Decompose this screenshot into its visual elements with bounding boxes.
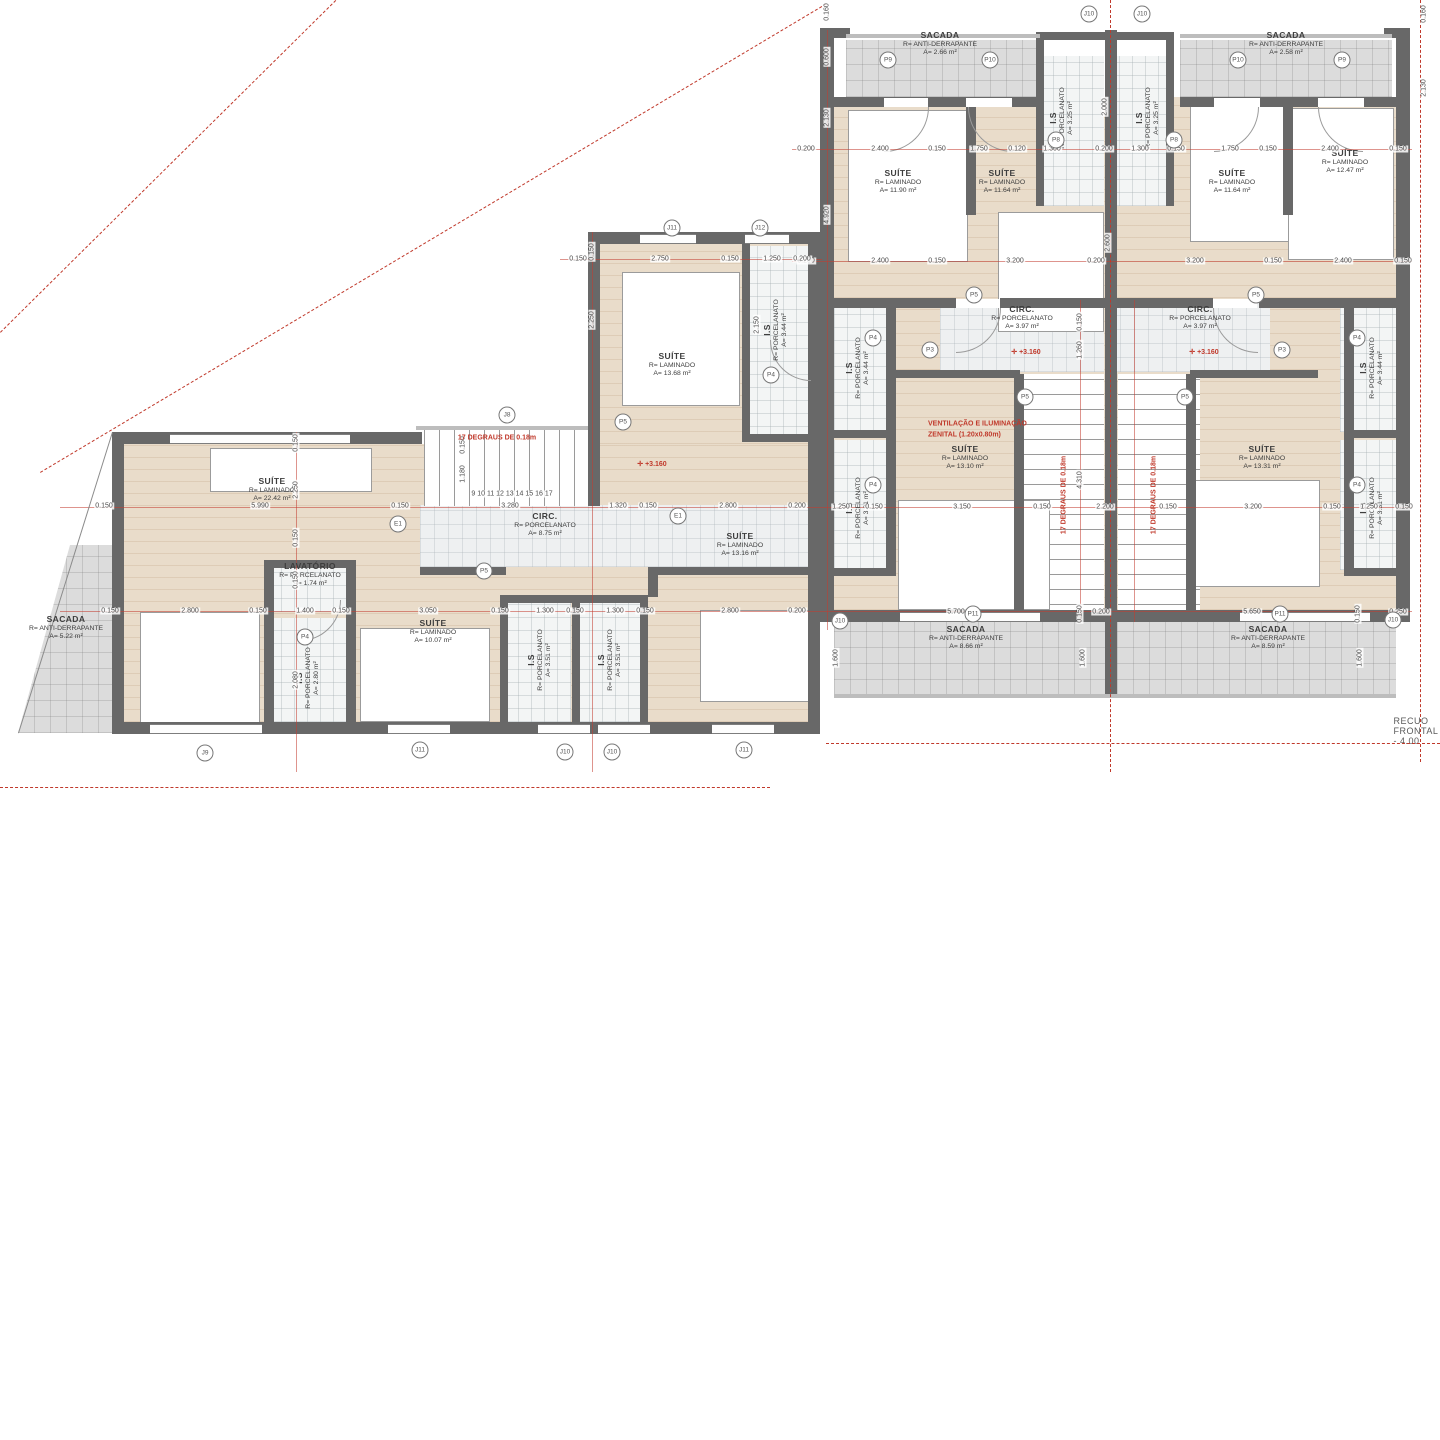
dimension-label: 0.150 — [490, 608, 510, 615]
dimension-label: 0.200 — [792, 256, 812, 263]
dimension-label: 3.050 — [418, 608, 438, 615]
dimension-label: 1.250 — [1359, 504, 1379, 511]
tag-badge-e1: E1 — [390, 516, 407, 533]
wall — [834, 97, 1044, 107]
dimension-label: 2.400 — [1333, 258, 1353, 265]
wall — [1396, 30, 1410, 622]
room-detail: R= PORCELANATO — [1169, 315, 1231, 323]
wall — [834, 568, 896, 576]
room-detail: A= 3.44 m² — [781, 299, 789, 361]
tag-badge-p8: P8 — [1048, 132, 1065, 149]
dimension-label: 1.600 — [1080, 648, 1087, 668]
tag-badge-p9: P9 — [880, 52, 897, 69]
tag-badge-j8: J8 — [499, 407, 516, 424]
dimension-label: 0.150 — [635, 608, 655, 615]
dimension-label: 0.150 — [565, 608, 585, 615]
room-title: SUÍTE — [410, 618, 456, 629]
room-detail: A= 2.66 m² — [903, 49, 977, 57]
window — [388, 724, 450, 734]
room-detail: A= 3.44 m² — [863, 337, 871, 399]
dimension-label: 0.150 — [1263, 258, 1283, 265]
room-title: SUÍTE — [979, 168, 1025, 179]
room-detail: R= LAMINADO — [410, 629, 456, 637]
room-detail: A= 3.97 m² — [1169, 323, 1231, 331]
dimension-label: 2.750 — [650, 256, 670, 263]
dimension-label: 1.600 — [833, 648, 840, 668]
dimension-label: 0.150 — [568, 256, 588, 263]
room-title: SUÍTE — [649, 351, 695, 362]
window — [745, 234, 789, 244]
room-label-suite-1331: SUÍTER= LAMINADOA= 13.31 m² — [1239, 444, 1285, 472]
room-title: SACADA — [29, 614, 103, 625]
room-detail: R= PORCELANATO — [279, 572, 341, 580]
window — [538, 724, 590, 734]
room-title: CIRC. — [1169, 304, 1231, 315]
dimension-label: 0.150 — [1258, 146, 1278, 153]
red-dash-line — [1110, 0, 1111, 772]
dimension-label: 3.200 — [1243, 504, 1263, 511]
tag-badge-p4: P4 — [297, 629, 314, 646]
dimension-label: 0.150 — [927, 146, 947, 153]
wall — [588, 232, 600, 444]
dimension-label: 0.120 — [1007, 146, 1027, 153]
wall — [346, 560, 356, 724]
room-title: SACADA — [1249, 30, 1323, 41]
room-detail: R= ANTI-DERRAPANTE — [1249, 41, 1323, 49]
wall — [892, 370, 1020, 378]
tag-badge-e1: E1 — [670, 508, 687, 525]
tag-badge-p4: P4 — [865, 477, 882, 494]
level-marker: ✛ +3.160 — [1011, 348, 1040, 356]
dimension-label: 3.200 — [1185, 258, 1205, 265]
room-title: I.S — [844, 337, 855, 399]
room-detail: A= 8.59 m² — [1231, 643, 1305, 651]
tag-badge-p10: P10 — [982, 52, 999, 69]
wall — [1036, 32, 1044, 206]
tag-badge-j10: J10 — [604, 744, 621, 761]
tag-badge-p5: P5 — [1248, 287, 1265, 304]
room-label-lavatorio: LAVATÓRIOR= PORCELANATOA= 1.74 m² — [279, 561, 341, 589]
wall — [264, 560, 274, 724]
wall — [112, 432, 124, 734]
room-detail: A= 11.64 m² — [1209, 187, 1255, 195]
dimension-label: 0.200 — [787, 608, 807, 615]
room-detail: R= LAMINADO — [1239, 455, 1285, 463]
wall — [1105, 622, 1117, 696]
tag-badge-j10: J10 — [557, 744, 574, 761]
room-title: I.S — [596, 629, 607, 691]
room-detail: A= 3.25 m² — [1067, 87, 1075, 149]
room-detail: R= LAMINADO — [717, 542, 763, 550]
room-label-suite-1316: SUÍTER= LAMINADOA= 13.16 m² — [717, 531, 763, 559]
wall — [1190, 370, 1318, 378]
wall — [1014, 374, 1024, 620]
red-note: 17 DEGRAUS DE 0.18m — [1061, 456, 1068, 534]
red-dash-line — [1420, 0, 1421, 762]
wall — [420, 567, 506, 575]
dimension-label: 0.200 — [1086, 258, 1106, 265]
tag-badge-j10: J10 — [832, 613, 849, 630]
dimension-label: 0.150 — [1394, 504, 1414, 511]
room-label-is-344a: I.SR= PORCELANATOA= 3.44 m² — [844, 337, 872, 399]
wall — [1105, 30, 1117, 622]
room-detail: A= 2.58 m² — [1249, 49, 1323, 57]
tag-badge-p5: P5 — [615, 414, 632, 431]
dimension-label: 0.150 — [293, 570, 300, 590]
dimension-label: 2.600 — [1105, 233, 1112, 253]
room-detail: A= 3.51 m² — [545, 629, 553, 691]
dimension-label: 0.150 — [1158, 504, 1178, 511]
dimension-label: 0.150 — [94, 503, 114, 510]
room-label-suite-1190: SUÍTER= LAMINADOA= 11.90 m² — [875, 168, 921, 196]
room-detail: R= PORCELANATO — [991, 315, 1053, 323]
dimension-label: 1.250 — [762, 256, 782, 263]
room-title: SACADA — [929, 624, 1003, 635]
dimension-label: 1.260 — [1077, 340, 1084, 360]
dimension-label: 5.700 — [946, 609, 966, 616]
tag-badge-p3: P3 — [1274, 342, 1291, 359]
red-note: VENTILAÇÃO E ILUMINAÇÃO — [928, 421, 1027, 428]
room-detail: R= PORCELANATO — [514, 522, 576, 530]
door-opening — [1214, 98, 1260, 107]
room-detail: A= 3.51 m² — [615, 629, 623, 691]
bed — [622, 272, 740, 406]
level-marker: ✛ +3.160 — [1189, 348, 1218, 356]
room-detail: R= ANTI-DERRAPANTE — [29, 625, 103, 633]
room-label-sacada-esq: SACADAR= ANTI-DERRAPANTEA= 5.22 m² — [29, 614, 103, 642]
room-detail: R= LAMINADO — [875, 179, 921, 187]
door-opening — [1318, 98, 1364, 107]
tag-badge-p5: P5 — [1017, 389, 1034, 406]
red-dash-line — [826, 743, 1440, 744]
room-title: SACADA — [903, 30, 977, 41]
tag-badge-p4: P4 — [1349, 330, 1366, 347]
level-marker: ✛ +3.160 — [637, 460, 666, 468]
room-title: I.S — [1134, 87, 1145, 149]
wall — [1344, 438, 1354, 570]
door-opening — [966, 98, 1012, 107]
room-label-circ-397a: CIRC.R= PORCELANATOA= 3.97 m² — [991, 304, 1053, 332]
dimension-label: 1.320 — [608, 503, 628, 510]
dimension-label: 0.150 — [638, 503, 658, 510]
dimension-label: 1.300 — [1130, 146, 1150, 153]
tag-badge-p11: P11 — [965, 606, 982, 623]
dimension-label: 0.150 — [1077, 312, 1084, 332]
window — [712, 724, 774, 734]
dimension-label: 0.200 — [1094, 146, 1114, 153]
room-title: SUÍTE — [1209, 168, 1255, 179]
tag-badge-p3: P3 — [922, 342, 939, 359]
wall — [1166, 32, 1174, 206]
tag-badge-j10: J10 — [1385, 612, 1402, 629]
dimension-label: 0.150 — [1388, 146, 1408, 153]
room-label-sacada-topo-a: SACADAR= ANTI-DERRAPANTEA= 2.66 m² — [903, 30, 977, 58]
room-label-is-351b: I.SR= PORCELANATOA= 3.51 m² — [596, 629, 624, 691]
room-detail: A= 3.97 m² — [991, 323, 1053, 331]
dimension-label: 0.600 — [824, 47, 831, 67]
wall — [1344, 430, 1406, 438]
room-title: SACADA — [1231, 624, 1305, 635]
balcony-rail — [834, 694, 1396, 698]
room-detail: R= LAMINADO — [1209, 179, 1255, 187]
room-detail: A= 1.74 m² — [279, 580, 341, 588]
tag-badge-j11: J11 — [412, 742, 429, 759]
room-detail: R= ANTI-DERRAPANTE — [903, 41, 977, 49]
red-dash-line — [0, 787, 770, 788]
room-detail: A= 5.22 m² — [29, 633, 103, 641]
room-title: SUÍTE — [249, 476, 295, 487]
room-label-is-344-esq: I.SR= PORCELANATOA= 3.44 m² — [762, 299, 790, 361]
dimension-label: 3.200 — [1005, 258, 1025, 265]
room-detail: R= LAMINADO — [249, 487, 295, 495]
floor-plan: RECUO FRONTAL - 4.00 SACADAR= ANTI-DERRA… — [0, 0, 1440, 1440]
dimension-label: 5.650 — [1242, 609, 1262, 616]
recuo-frontal-label: RECUO FRONTAL - 4.00 — [1394, 716, 1439, 746]
room-label-sacada-baixo-a: SACADAR= ANTI-DERRAPANTEA= 8.66 m² — [929, 624, 1003, 652]
room-detail: R= PORCELANATO — [305, 647, 313, 709]
tag-badge-j12: J12 — [752, 220, 769, 237]
room-label-suite-1007: SUÍTER= LAMINADOA= 10.07 m² — [410, 618, 456, 646]
dimension-label: 3.280 — [500, 503, 520, 510]
room-detail: A= 2.80 m² — [313, 647, 321, 709]
dimension-label: 5.990 — [250, 503, 270, 510]
room-detail: A= 13.10 m² — [942, 463, 988, 471]
tag-badge-j10: J10 — [1134, 6, 1151, 23]
dimension-label: 1.400 — [295, 608, 315, 615]
dimension-label: 0.150 — [1355, 604, 1362, 624]
red-dim-line — [560, 259, 822, 260]
dimension-label: 2.250 — [293, 480, 300, 500]
room-label-sacada-topo-b: SACADAR= ANTI-DERRAPANTEA= 2.58 m² — [1249, 30, 1323, 58]
dimension-label: 2.150 — [754, 315, 761, 335]
room-label-circ-397b: CIRC.R= PORCELANATOA= 3.97 m² — [1169, 304, 1231, 332]
tag-badge-j11: J11 — [664, 220, 681, 237]
room-title: SUÍTE — [717, 531, 763, 542]
tag-badge-p11: P11 — [1272, 606, 1289, 623]
tag-badge-p4: P4 — [865, 330, 882, 347]
room-detail: R= ANTI-DERRAPANTE — [929, 635, 1003, 643]
room-detail: A= 12.47 m² — [1322, 167, 1368, 175]
window — [170, 434, 350, 444]
dimension-label: 2.400 — [870, 146, 890, 153]
wall — [1259, 298, 1396, 308]
tag-badge-p4: P4 — [763, 367, 780, 384]
room-label-suite-1164b: SUÍTER= LAMINADOA= 11.64 m² — [1209, 168, 1255, 196]
wall — [886, 300, 896, 432]
bed — [700, 610, 812, 702]
tag-badge-p4: P4 — [1349, 477, 1366, 494]
room-title: SUÍTE — [942, 444, 988, 455]
dimension-label: 4.920 — [824, 205, 831, 225]
dimension-label: 1.300 — [605, 608, 625, 615]
room-detail: A= 3.44 m² — [1377, 337, 1385, 399]
dimension-label: 3.150 — [952, 504, 972, 511]
dimension-label: 1.180 — [460, 464, 467, 484]
room-title: CIRC. — [991, 304, 1053, 315]
room-detail: A= 10.07 m² — [410, 637, 456, 645]
room-detail: A= 13.68 m² — [649, 370, 695, 378]
bed — [898, 500, 1050, 610]
dimension-label: 1.300 — [535, 608, 555, 615]
dimension-label: 2.080 — [293, 670, 300, 690]
dimension-label: 0.200 — [1091, 609, 1111, 616]
room-title: I.S — [762, 299, 773, 361]
room-label-suite-1368: SUÍTER= LAMINADOA= 13.68 m² — [649, 351, 695, 379]
tag-badge-p9: P9 — [1334, 52, 1351, 69]
room-detail: R= LAMINADO — [649, 362, 695, 370]
room-label-is-325b: I.SR= PORCELANATOA= 3.25 m² — [1134, 87, 1162, 149]
room-detail: R= PORCELANATO — [1369, 337, 1377, 399]
red-note: 17 DEGRAUS DE 0.18m — [1151, 456, 1158, 534]
dimension-label: 0.150 — [293, 433, 300, 453]
wall — [648, 567, 808, 575]
dimension-label: 2.400 — [870, 258, 890, 265]
room-title: I.S — [526, 629, 537, 691]
dimension-label: 1.750 — [1220, 146, 1240, 153]
dimension-label: 1.750 — [969, 146, 989, 153]
room-detail: A= 13.16 m² — [717, 550, 763, 558]
tag-badge-j11: J11 — [736, 742, 753, 759]
dimension-label: 0.150 — [1322, 504, 1342, 511]
dimension-label: 0.150 — [927, 258, 947, 265]
dimension-label: 0.150 — [390, 503, 410, 510]
dimension-label: 0.150 — [589, 242, 596, 262]
wall — [1344, 300, 1354, 432]
window — [150, 724, 262, 734]
tag-badge-j9: J9 — [197, 745, 214, 762]
room-detail: A= 8.75 m² — [514, 530, 576, 538]
red-dash-line — [0, 0, 336, 333]
dimension-label: 2.000 — [1102, 97, 1109, 117]
bed — [1188, 480, 1320, 587]
wall — [834, 430, 896, 438]
window — [598, 724, 650, 734]
room-label-circ-875: CIRC.R= PORCELANATOA= 8.75 m² — [514, 511, 576, 539]
dimension-label: 2.800 — [180, 608, 200, 615]
room-detail: A= 3.25 m² — [1153, 87, 1161, 149]
dimension-label: 2.800 — [720, 608, 740, 615]
dimension-label: 0.150 — [1393, 258, 1413, 265]
dimension-label: 0.200 — [796, 146, 816, 153]
tag-badge-j10: J10 — [1081, 6, 1098, 23]
tag-badge-p5: P5 — [476, 563, 493, 580]
dimension-label: 0.150 — [864, 504, 884, 511]
room-title: SUÍTE — [875, 168, 921, 179]
room-detail: R= PORCELANATO — [773, 299, 781, 361]
red-note: ZENITAL (1.20x0.80m) — [928, 432, 1001, 439]
dimension-label: 2.130 — [1421, 78, 1428, 98]
dimension-label: 0.150 — [1077, 604, 1084, 624]
wall — [886, 438, 896, 570]
door-opening — [884, 98, 928, 107]
tag-badge-p10: P10 — [1230, 52, 1247, 69]
dimension-label: 2.200 — [1095, 504, 1115, 511]
dimension-label: 0.160 — [824, 2, 831, 22]
room-detail: R= LAMINADO — [979, 179, 1025, 187]
dimension-label: 0.200 — [787, 503, 807, 510]
wall — [1036, 32, 1174, 40]
tag-badge-p8: P8 — [1166, 132, 1183, 149]
wall — [1283, 97, 1293, 215]
room-detail: R= PORCELANATO — [855, 477, 863, 539]
room-detail: R= ANTI-DERRAPANTE — [1231, 635, 1305, 643]
room-label-is-344b: I.SR= PORCELANATOA= 3.44 m² — [1358, 337, 1386, 399]
room-detail: R= PORCELANATO — [1145, 87, 1153, 149]
room-detail: A= 13.31 m² — [1239, 463, 1285, 471]
room-title: I.S — [1358, 337, 1369, 399]
tag-badge-p5: P5 — [1177, 389, 1194, 406]
dimension-label: 0.150 — [1032, 504, 1052, 511]
dimension-label: 0.150 — [248, 608, 268, 615]
room-detail: R= PORCELANATO — [855, 337, 863, 399]
room-label-is-351a: I.SR= PORCELANATOA= 3.51 m² — [526, 629, 554, 691]
wall — [1344, 568, 1406, 576]
red-note: 17 DEGRAUS DE 0.18m — [458, 435, 536, 442]
room-label-suite-1310: SUÍTER= LAMINADOA= 13.10 m² — [942, 444, 988, 472]
room-label-suite-2242: SUÍTER= LAMINADOA= 22.42 m² — [249, 476, 295, 504]
red-dim-line — [1134, 300, 1135, 622]
room-detail: R= LAMINADO — [1322, 159, 1368, 167]
room-detail: R= LAMINADO — [942, 455, 988, 463]
dimension-label: 0.150 — [100, 608, 120, 615]
room-detail: A= 11.64 m² — [979, 187, 1025, 195]
dimension-label: 2.130 — [824, 108, 831, 128]
wall — [808, 232, 820, 734]
room-detail: R= PORCELANATO — [607, 629, 615, 691]
wall — [500, 595, 648, 603]
wall — [648, 567, 658, 597]
dimension-label: 2.250 — [589, 310, 596, 330]
dimension-label: 0.150 — [331, 608, 351, 615]
room-detail: A= 11.90 m² — [875, 187, 921, 195]
dimension-label: 0.160 — [1421, 4, 1428, 24]
balcony-rail — [416, 426, 588, 430]
bed — [140, 612, 260, 726]
room-title: SUÍTE — [1239, 444, 1285, 455]
dimension-label: 1.250 — [831, 504, 851, 511]
dimension-label: 2.800 — [718, 503, 738, 510]
room-label-sacada-baixo-b: SACADAR= ANTI-DERRAPANTEA= 8.59 m² — [1231, 624, 1305, 652]
dimension-label: 4.310 — [1077, 470, 1084, 490]
tag-badge-p5: P5 — [966, 287, 983, 304]
wall — [588, 432, 600, 506]
dimension-label: 9 10 11 12 13 14 15 16 17 — [470, 491, 553, 498]
dimension-label: 0.150 — [720, 256, 740, 263]
room-detail: A= 8.66 m² — [929, 643, 1003, 651]
room-label-suite-1164a: SUÍTER= LAMINADOA= 11.64 m² — [979, 168, 1025, 196]
room-title: CIRC. — [514, 511, 576, 522]
dimension-label: 0.150 — [293, 528, 300, 548]
dimension-label: 1.600 — [1357, 648, 1364, 668]
dimension-label: 2.400 — [1320, 146, 1340, 153]
wall — [742, 434, 816, 442]
wall — [1186, 374, 1196, 620]
room-title: LAVATÓRIO — [279, 561, 341, 572]
room-detail: R= PORCELANATO — [537, 629, 545, 691]
wall — [742, 244, 750, 442]
